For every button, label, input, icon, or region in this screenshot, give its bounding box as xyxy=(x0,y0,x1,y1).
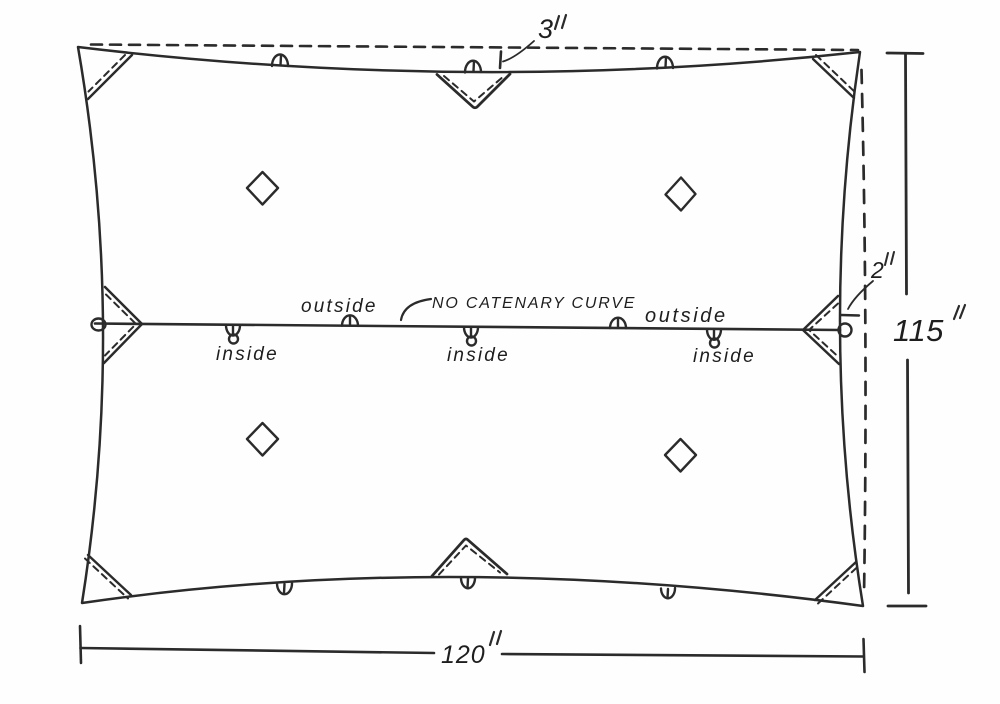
svg-text:3: 3 xyxy=(538,14,553,44)
svg-text:outside: outside xyxy=(645,305,728,327)
svg-text:inside: inside xyxy=(447,345,510,366)
svg-text:inside: inside xyxy=(693,346,756,367)
svg-text:inside: inside xyxy=(216,344,279,365)
svg-text:outside: outside xyxy=(301,296,378,317)
svg-text:2: 2 xyxy=(870,257,884,283)
svg-text:115: 115 xyxy=(893,313,944,348)
svg-text:NO CATENARY CURVE: NO CATENARY CURVE xyxy=(432,295,636,312)
svg-text:120: 120 xyxy=(441,641,486,669)
